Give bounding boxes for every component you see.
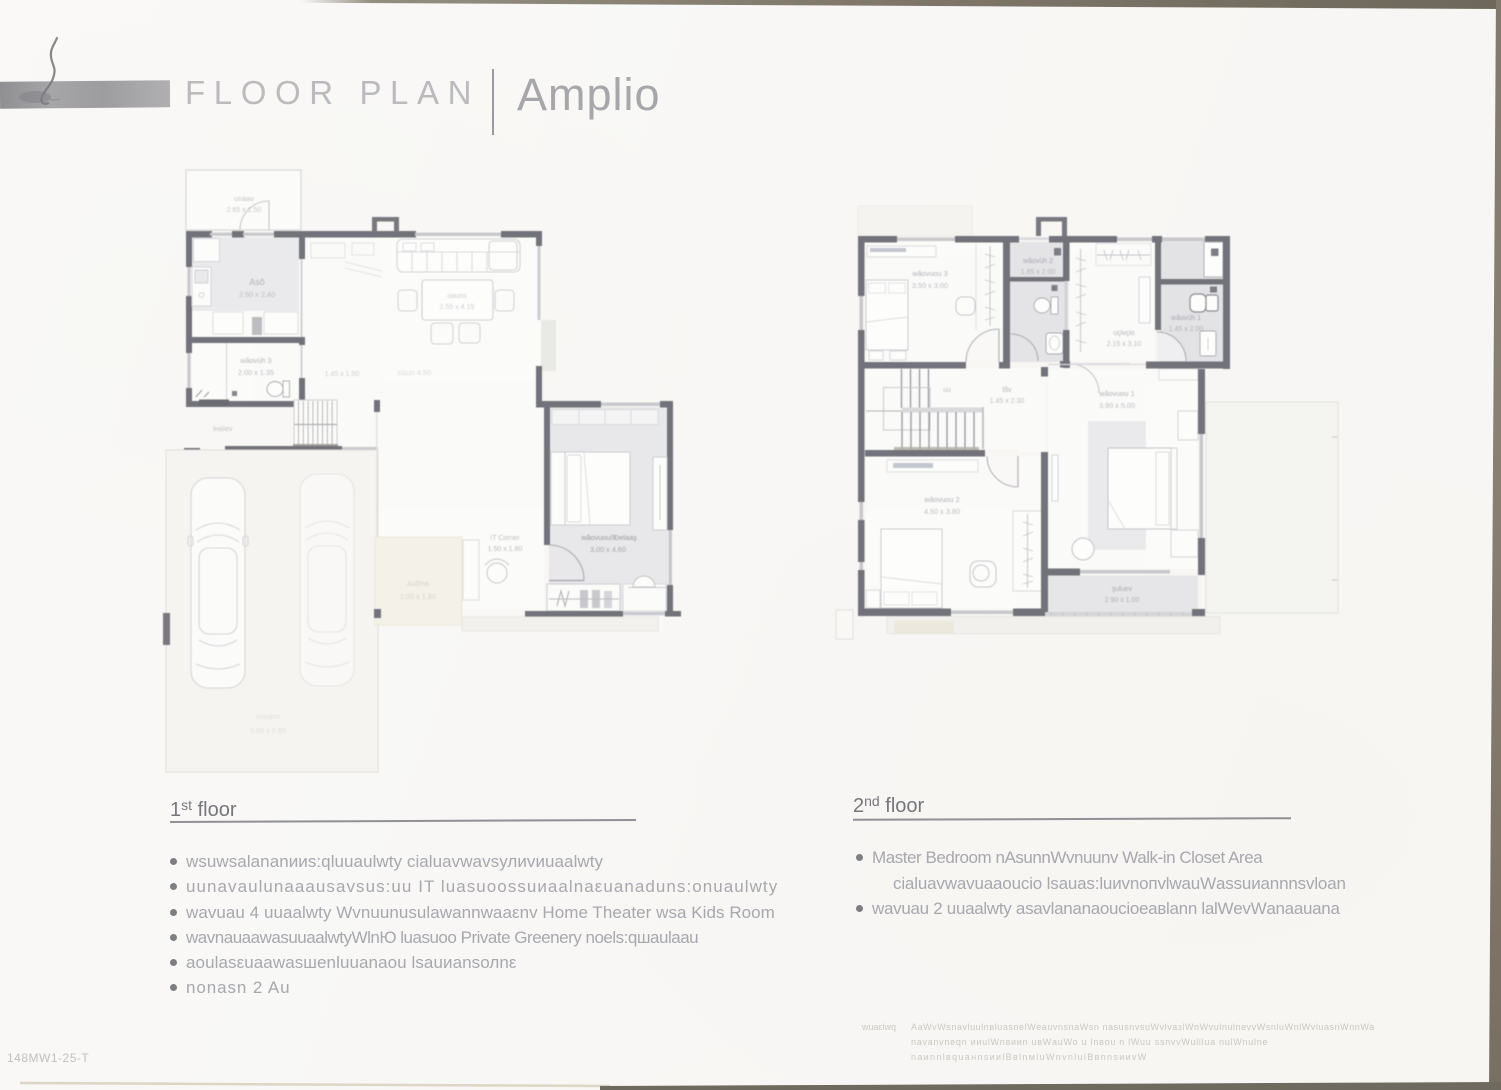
svg-text:oauns: oauns — [447, 293, 467, 300]
svg-text:5.90 x 5.85: 5.90 x 5.85 — [250, 726, 286, 735]
svg-text:wâovùh 2: wâovùh 2 — [1022, 258, 1053, 265]
svg-text:2.15 x 3.10: 2.15 x 3.10 — [1107, 341, 1142, 348]
svg-text:wâovuou 2: wâovuou 2 — [923, 495, 959, 504]
svg-text:1.45 x 2.30: 1.45 x 2.30 — [990, 398, 1025, 405]
svg-text:1.45 x 2.00: 1.45 x 2.00 — [1169, 326, 1204, 333]
svg-text:wâovuou 1: wâovuou 1 — [1098, 389, 1134, 398]
svg-text:3.90 x 5.00: 3.90 x 5.00 — [1099, 401, 1135, 410]
svg-text:1.50 x 1.80: 1.50 x 1.80 — [488, 546, 523, 553]
svg-text:2.65 x 1.50: 2.65 x 1.50 — [227, 207, 262, 214]
svg-text:nnoasn: nnoasn — [256, 712, 280, 721]
svg-text:2.90 x 1.00: 2.90 x 1.00 — [1105, 597, 1140, 604]
svg-text:Asôlnв: Asôlnв — [407, 579, 429, 588]
svg-text:2.00 x 1.80: 2.00 x 1.80 — [400, 592, 436, 601]
svg-text:4.50 x 3.80: 4.50 x 3.80 — [924, 507, 960, 516]
svg-text:uçivçio: uçivçio — [1113, 330, 1135, 337]
svg-text:wâovuou/lÐеlaaş: wâovuou/lÐеlaaş — [580, 533, 637, 542]
svg-text:1.45 x 1.50: 1.45 x 1.50 — [325, 371, 360, 378]
svg-text:2.50 x 2.40: 2.50 x 2.40 — [239, 290, 275, 299]
svg-text:wâovùh 1: wâovùh 1 — [1170, 315, 1201, 322]
svg-text:süшn 4.50: süшn 4.50 — [397, 368, 431, 377]
svg-text:unäav: unäav — [234, 194, 254, 203]
svg-text:2.00 x 1.35: 2.00 x 1.35 — [238, 368, 274, 377]
svg-text:wâovuou 3: wâovuou 3 — [911, 269, 947, 278]
svg-text:wâovùh 3: wâovùh 3 — [239, 356, 271, 365]
svg-text:Asô: Asô — [249, 277, 265, 287]
svg-text:lнаìеv: lнаìеv — [213, 424, 233, 433]
svg-text:uu: uu — [943, 387, 951, 394]
svg-text:şuluеv: şuluеv — [1112, 586, 1133, 593]
svg-text:3.00 x 4.60: 3.00 x 4.60 — [590, 545, 626, 554]
svg-text:2.55 x 4.15: 2.55 x 4.15 — [440, 304, 475, 311]
svg-text:1.85 x 2.00: 1.85 x 2.00 — [1021, 269, 1056, 276]
svg-text:lõv: lõv — [1003, 387, 1012, 394]
svg-text:IT Corner: IT Corner — [490, 535, 520, 542]
svg-text:3.50 x 3.00: 3.50 x 3.00 — [912, 281, 948, 290]
